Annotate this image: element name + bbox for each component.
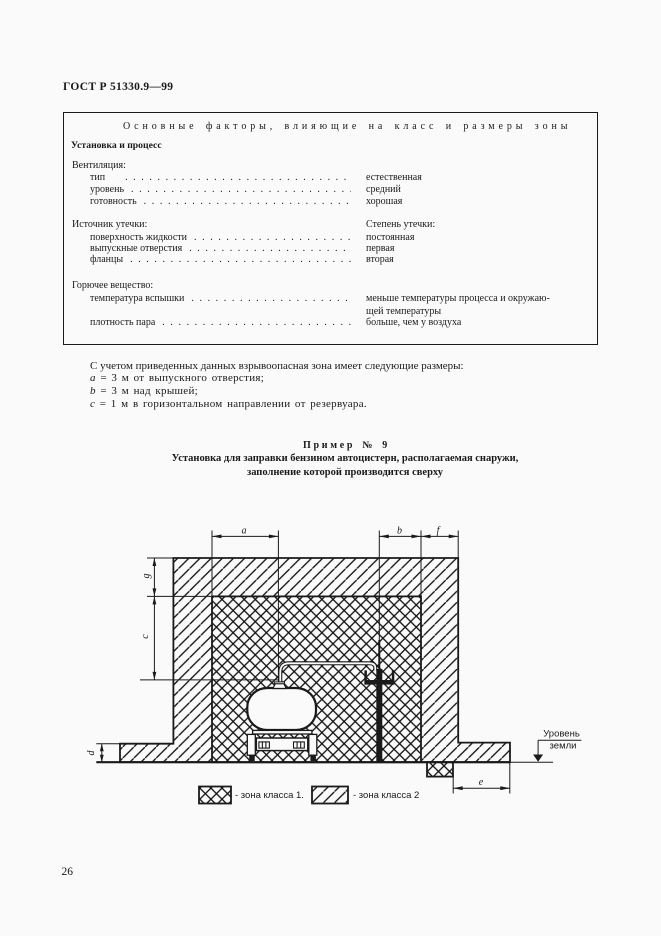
svg-text:f: f <box>437 526 441 537</box>
svg-text:земли: земли <box>550 741 577 752</box>
svg-text:с: с <box>140 634 151 639</box>
svg-text:Уровень: Уровень <box>543 729 580 740</box>
svg-text:b: b <box>397 526 402 537</box>
svg-text:d: d <box>86 750 97 756</box>
svg-text:- зона класса 1.: - зона класса 1. <box>235 790 304 801</box>
svg-text:g: g <box>141 574 152 579</box>
svg-text:- зона класса 2: - зона класса 2 <box>353 790 419 801</box>
svg-text:а: а <box>242 526 247 537</box>
svg-text:е: е <box>479 777 484 788</box>
